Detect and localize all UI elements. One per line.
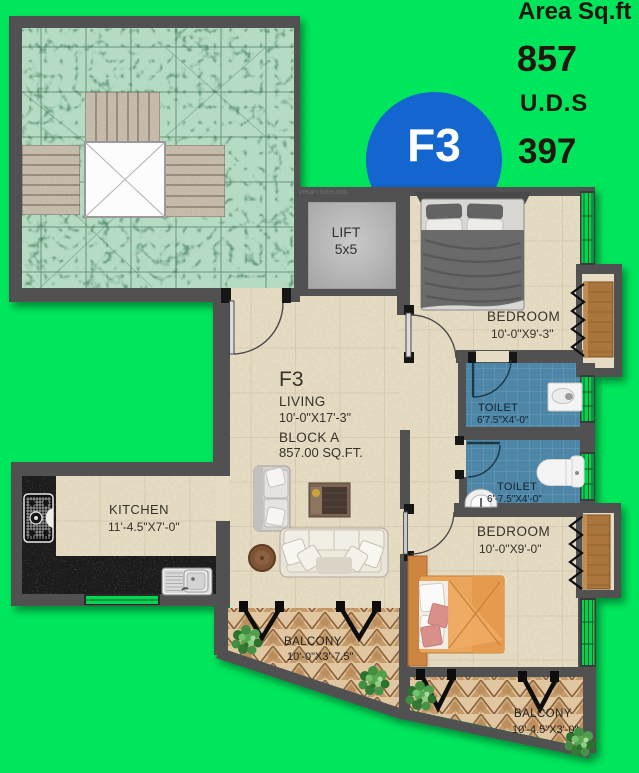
svg-text:857: 857 (517, 38, 577, 79)
svg-text:F3: F3 (279, 368, 304, 391)
svg-text:10'-0"X9'-0": 10'-0"X9'-0" (479, 542, 541, 556)
svg-text:10'-4.5"X3'-0": 10'-4.5"X3'-0" (512, 724, 579, 736)
svg-text:Area Sq.ft: Area Sq.ft (518, 0, 631, 25)
svg-text:10'-0"X9'-3": 10'-0"X9'-3" (491, 327, 553, 341)
svg-text:5x5: 5x5 (335, 241, 358, 257)
svg-text:BLOCK A: BLOCK A (279, 430, 340, 445)
svg-text:TOILET: TOILET (478, 402, 518, 414)
svg-text:LIVING: LIVING (279, 394, 326, 409)
svg-text:BEDROOM: BEDROOM (487, 309, 560, 324)
svg-text:11'-4.5"X7'-0": 11'-4.5"X7'-0" (108, 520, 180, 534)
svg-text:LIFT: LIFT (332, 224, 361, 240)
svg-text:F3: F3 (407, 119, 461, 171)
svg-text:U.D.S: U.D.S (520, 90, 588, 117)
svg-text:BEDROOM: BEDROOM (477, 524, 550, 539)
svg-text:397: 397 (518, 132, 576, 171)
svg-text:10'-0"X3'-7.5": 10'-0"X3'-7.5" (287, 651, 354, 663)
svg-text:857.00 SQ.FT.: 857.00 SQ.FT. (279, 445, 363, 460)
svg-text:10'-0"X17'-3": 10'-0"X17'-3" (279, 411, 351, 425)
svg-text:BALCONY: BALCONY (514, 708, 572, 720)
svg-text:6'7.5"X4'-0": 6'7.5"X4'-0" (477, 415, 529, 426)
svg-text:BALCONY: BALCONY (284, 636, 342, 648)
svg-text:KITCHEN: KITCHEN (109, 502, 169, 517)
svg-text:PROPTIGER.com: PROPTIGER.com (299, 190, 347, 196)
svg-text:TOILET: TOILET (497, 481, 537, 493)
svg-text:6'-7.5"X4'-0": 6'-7.5"X4'-0" (487, 494, 542, 505)
